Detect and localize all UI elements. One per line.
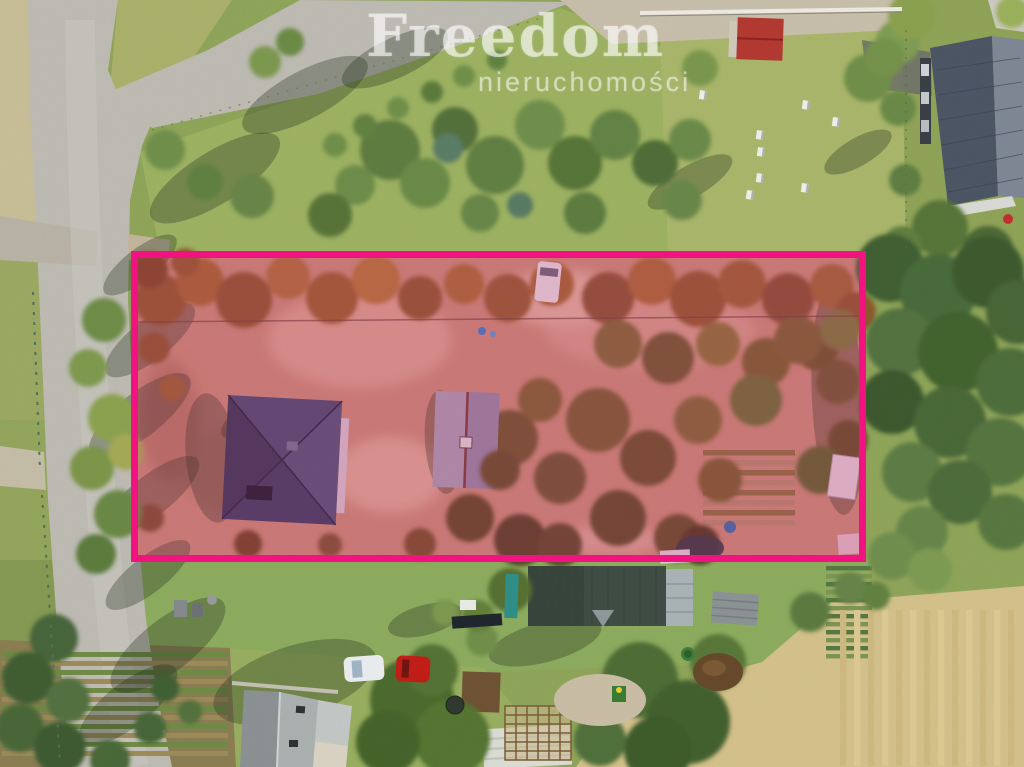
photo-grain xyxy=(0,0,1024,767)
aerial-photo-canvas xyxy=(0,0,1024,767)
aerial-photo: Freedom nieruchomości xyxy=(0,0,1024,767)
